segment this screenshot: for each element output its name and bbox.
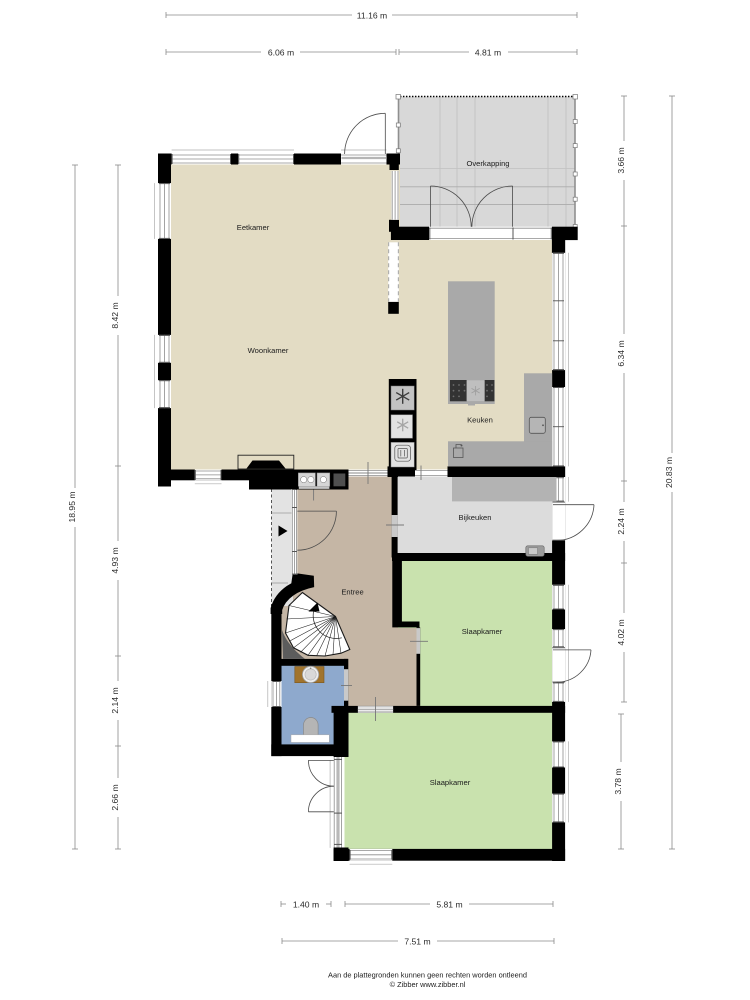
svg-text:Slaapkamer: Slaapkamer: [462, 627, 503, 636]
svg-text:Bijkeuken: Bijkeuken: [459, 513, 492, 522]
svg-text:2.66 m: 2.66 m: [110, 784, 120, 810]
svg-text:6.34 m: 6.34 m: [616, 340, 626, 366]
svg-text:18.95 m: 18.95 m: [67, 491, 77, 522]
svg-text:6.06 m: 6.06 m: [268, 48, 294, 58]
svg-text:© Zibber www.zibber.nl: © Zibber www.zibber.nl: [390, 980, 466, 989]
svg-text:8.42 m: 8.42 m: [110, 302, 120, 328]
svg-text:3.66 m: 3.66 m: [616, 147, 626, 173]
svg-text:Entree: Entree: [341, 588, 363, 597]
svg-text:2.14 m: 2.14 m: [110, 687, 120, 713]
svg-text:Eetkamer: Eetkamer: [237, 223, 270, 232]
svg-text:4.93 m: 4.93 m: [110, 547, 120, 573]
svg-text:Slaapkamer: Slaapkamer: [430, 778, 471, 787]
svg-text:7.51 m: 7.51 m: [404, 937, 430, 947]
svg-text:20.83 m: 20.83 m: [664, 457, 674, 488]
svg-text:Woonkamer: Woonkamer: [248, 346, 289, 355]
svg-text:Keuken: Keuken: [467, 416, 493, 425]
svg-text:1.40 m: 1.40 m: [293, 900, 319, 910]
svg-text:11.16 m: 11.16 m: [357, 11, 387, 21]
svg-text:2.24 m: 2.24 m: [616, 508, 626, 534]
svg-text:4.81 m: 4.81 m: [475, 48, 501, 58]
svg-text:3.78 m: 3.78 m: [613, 768, 623, 794]
svg-text:5.81 m: 5.81 m: [436, 900, 462, 910]
svg-text:4.02 m: 4.02 m: [616, 619, 626, 645]
svg-text:Overkapping: Overkapping: [466, 159, 509, 168]
svg-text:Aan de plattegronden kunnen ge: Aan de plattegronden kunnen geen rechten…: [328, 971, 527, 980]
